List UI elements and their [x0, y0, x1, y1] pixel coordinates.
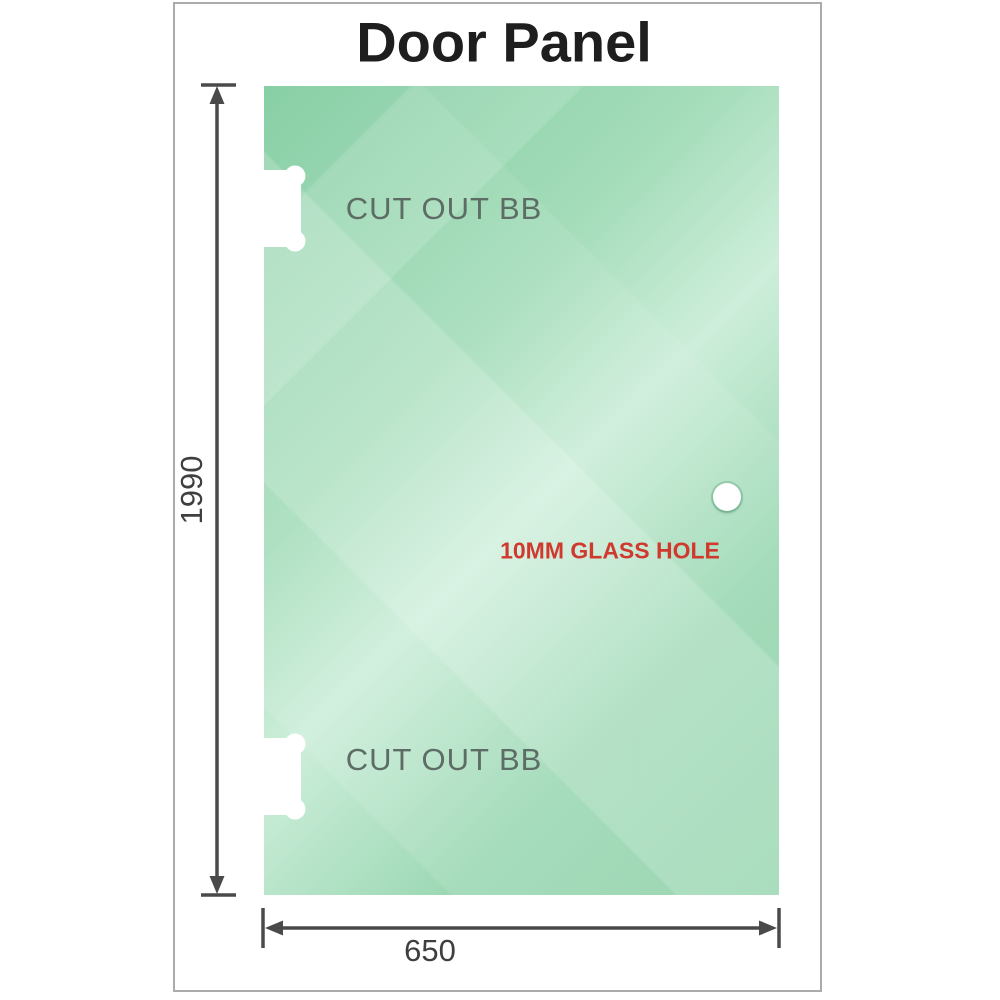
page-title: Door Panel — [356, 10, 652, 75]
height-dimension-label: 1990 — [174, 456, 210, 525]
hinge-cutout-top — [262, 164, 310, 254]
width-dimension-arrow-icon — [256, 906, 790, 952]
diagram-canvas: Door Panel CUT OUT BB CUT OUT BB 10MM GL… — [0, 0, 1000, 1000]
glass-hole-label: 10MM GLASS HOLE — [500, 538, 720, 565]
width-dimension-label: 650 — [404, 933, 456, 969]
hinge-cutout-bottom-label: CUT OUT BB — [346, 742, 543, 778]
hinge-cutout-top-label: CUT OUT BB — [346, 191, 543, 227]
hinge-cutout-bottom — [262, 732, 310, 822]
glass-hole — [713, 483, 741, 511]
